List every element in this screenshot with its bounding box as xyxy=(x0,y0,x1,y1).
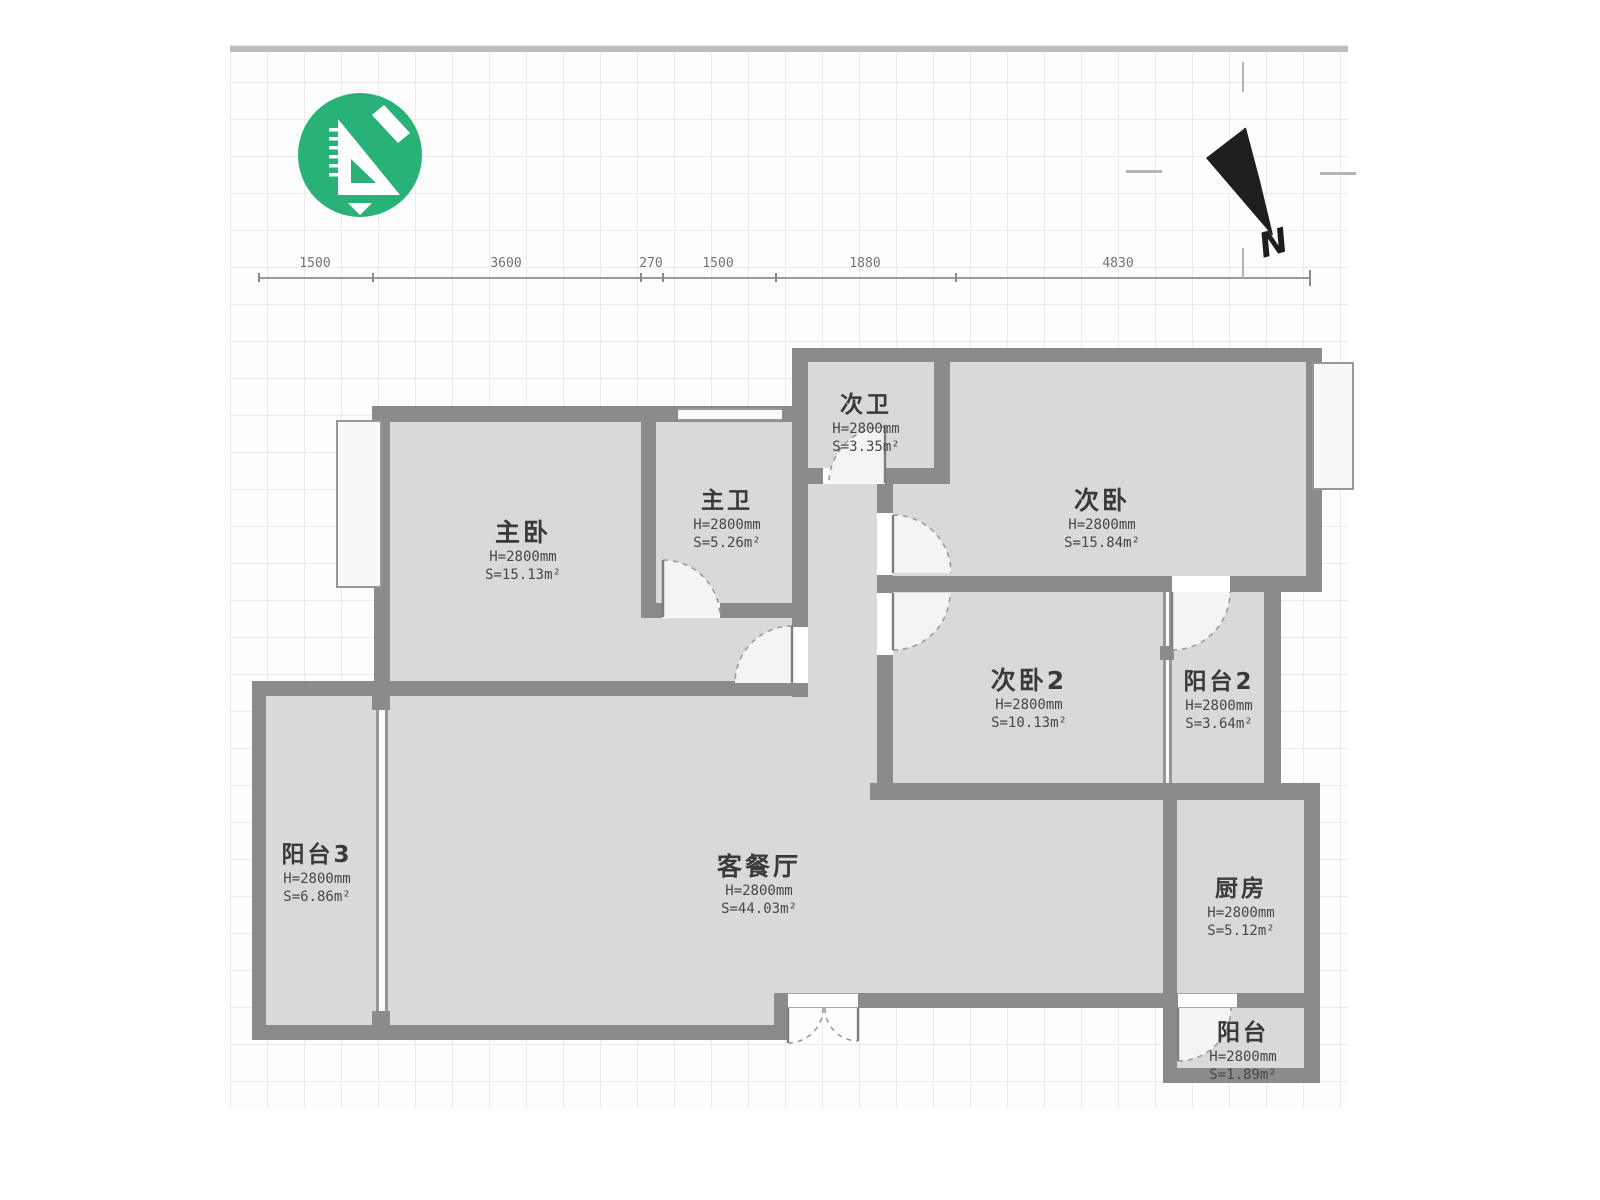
window-post xyxy=(372,1011,390,1027)
wall xyxy=(877,576,1320,592)
wall xyxy=(870,783,1320,800)
wall xyxy=(792,348,1322,362)
wall xyxy=(1264,592,1281,800)
room-height: H=2800mm xyxy=(991,696,1067,714)
wall xyxy=(934,348,950,484)
room-living-right[interactable] xyxy=(877,800,1163,993)
room-area: S=44.03m² xyxy=(717,900,801,918)
room-label-second-bath[interactable]: 次卫 H=2800mm S=3.35m² xyxy=(832,390,899,456)
room-label-balcony3[interactable]: 阳台3 H=2800mm S=6.86m² xyxy=(281,840,352,906)
room-area: S=6.86m² xyxy=(281,888,352,906)
room-name: 阳台 xyxy=(1209,1018,1276,1048)
room-area: S=5.26m² xyxy=(693,534,760,552)
north-compass: N xyxy=(1160,90,1360,290)
room-area: S=10.13m² xyxy=(991,714,1067,732)
wall xyxy=(252,681,266,1040)
door-opening xyxy=(877,593,893,655)
room-label-living-dining[interactable]: 客餐厅 H=2800mm S=44.03m² xyxy=(717,852,801,918)
room-second-bedroom-ext[interactable] xyxy=(893,484,950,576)
window xyxy=(678,408,782,421)
room-height: H=2800mm xyxy=(832,420,899,438)
compass-north-label: N xyxy=(1254,220,1292,266)
dimension-label: 4830 xyxy=(1102,256,1133,271)
door-opening xyxy=(823,468,885,484)
room-master-bedroom-strip[interactable] xyxy=(641,618,792,683)
room-name: 主卧 xyxy=(485,518,561,548)
dimension-tick xyxy=(372,273,374,282)
bay-window xyxy=(1312,362,1354,490)
dimension-label: 1880 xyxy=(849,256,880,271)
room-height: H=2800mm xyxy=(1209,1048,1276,1066)
wall xyxy=(774,993,788,1040)
wall xyxy=(858,993,1320,1008)
dimension-label: 3600 xyxy=(490,256,521,271)
dimension-tick xyxy=(955,273,957,282)
dimension-line xyxy=(258,277,1310,279)
room-label-master-bedroom[interactable]: 主卧 H=2800mm S=15.13m² xyxy=(485,518,561,584)
dimension-label: 270 xyxy=(639,256,662,271)
entry-door-threshold xyxy=(788,993,858,1008)
window-post xyxy=(1160,646,1174,660)
room-label-kitchen[interactable]: 厨房 H=2800mm S=5.12m² xyxy=(1207,874,1274,940)
room-living-mid[interactable] xyxy=(780,696,877,993)
room-name: 次卧 xyxy=(1064,486,1140,516)
room-area: S=15.84m² xyxy=(1064,534,1140,552)
room-area: S=3.64m² xyxy=(1183,715,1254,733)
app-logo-button[interactable] xyxy=(298,93,422,217)
bay-window xyxy=(336,420,382,588)
room-height: H=2800mm xyxy=(485,548,561,566)
wall xyxy=(641,406,656,618)
wall xyxy=(252,681,808,696)
room-name: 次卫 xyxy=(832,390,899,420)
room-height: H=2800mm xyxy=(717,882,801,900)
room-height: H=2800mm xyxy=(1207,904,1274,922)
room-height: H=2800mm xyxy=(1064,516,1140,534)
room-height: H=2800mm xyxy=(1183,697,1254,715)
room-name: 阳台2 xyxy=(1183,667,1254,697)
room-area: S=15.13m² xyxy=(485,566,561,584)
room-name: 次卧2 xyxy=(991,666,1067,696)
floorplan-canvas: 1500 3600 270 1500 1880 4830 主卧 H=2800mm… xyxy=(0,0,1600,1200)
compass-arrow-dark xyxy=(1206,128,1272,235)
room-label-balcony[interactable]: 阳台 H=2800mm S=1.89m² xyxy=(1209,1018,1276,1084)
window-post xyxy=(372,696,390,710)
sliding-window-wall xyxy=(376,696,388,1027)
wall xyxy=(1163,800,1177,1008)
room-name: 厨房 xyxy=(1207,874,1274,904)
door-opening xyxy=(792,627,808,683)
room-name: 主卫 xyxy=(693,486,760,516)
door-threshold xyxy=(1178,993,1237,1008)
room-name: 客餐厅 xyxy=(717,852,801,882)
room-area: S=5.12m² xyxy=(1207,922,1274,940)
dimension-label: 1500 xyxy=(702,256,733,271)
dimension-label: 1500 xyxy=(299,256,330,271)
room-label-second-bedroom2[interactable]: 次卧2 H=2800mm S=10.13m² xyxy=(991,666,1067,732)
room-area: S=1.89m² xyxy=(1209,1066,1276,1084)
set-square-ruler-icon xyxy=(298,93,422,217)
wall xyxy=(1163,1008,1177,1083)
dimension-tick xyxy=(640,273,642,282)
room-label-second-bedroom[interactable]: 次卧 H=2800mm S=15.84m² xyxy=(1064,486,1140,552)
door-opening xyxy=(877,513,893,575)
room-hallway[interactable] xyxy=(808,484,877,696)
dimension-tick xyxy=(258,273,260,282)
extension-mark xyxy=(1126,170,1162,173)
door-opening xyxy=(662,603,720,618)
wall xyxy=(252,1025,788,1040)
sliding-window-wall xyxy=(1163,592,1172,783)
room-height: H=2800mm xyxy=(281,870,352,888)
room-height: H=2800mm xyxy=(693,516,760,534)
canvas-top-edge xyxy=(230,46,1348,52)
room-area: S=3.35m² xyxy=(832,438,899,456)
room-name: 阳台3 xyxy=(281,840,352,870)
extension-mark xyxy=(1242,62,1244,92)
dimension-tick xyxy=(775,273,777,282)
room-label-master-bath[interactable]: 主卫 H=2800mm S=5.26m² xyxy=(693,486,760,552)
wall xyxy=(1304,800,1320,1083)
room-label-balcony2[interactable]: 阳台2 H=2800mm S=3.64m² xyxy=(1183,667,1254,733)
dimension-tick xyxy=(662,273,664,282)
door-opening xyxy=(1172,576,1230,592)
